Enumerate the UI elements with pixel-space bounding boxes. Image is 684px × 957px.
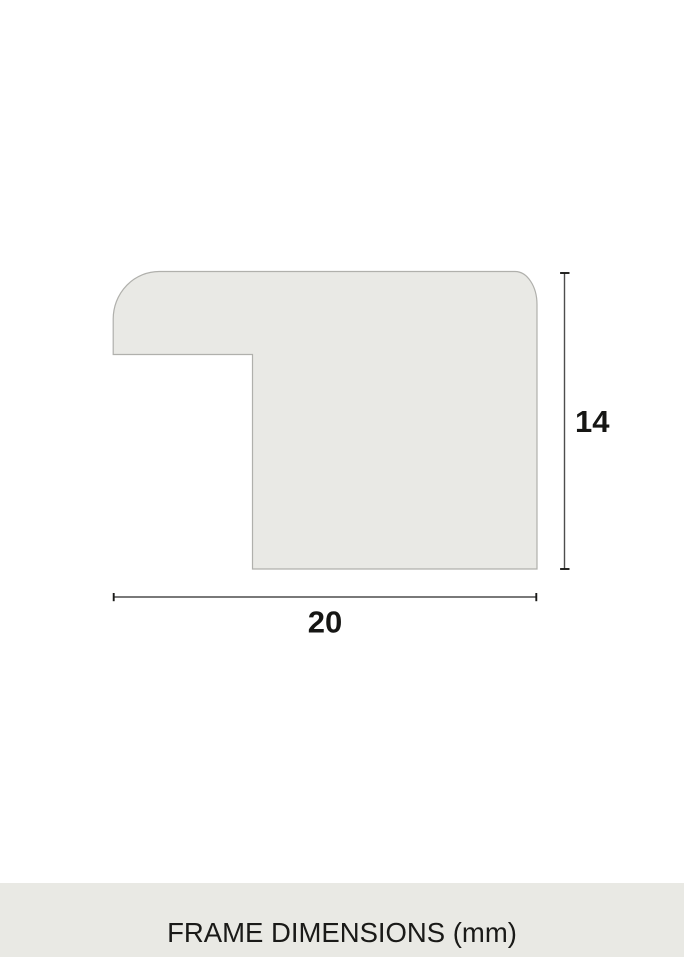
svg-text:14: 14 [575,404,610,439]
svg-text:20: 20 [308,605,342,640]
